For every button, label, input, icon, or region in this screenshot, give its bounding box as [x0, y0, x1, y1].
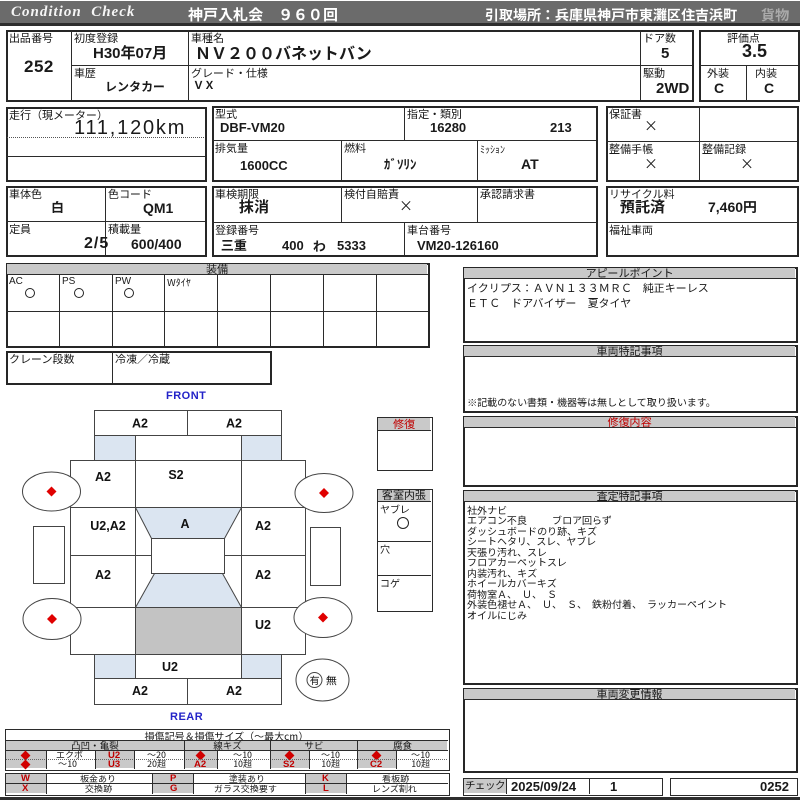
- svg-text:A2: A2: [95, 470, 111, 484]
- svg-text:A2: A2: [226, 684, 242, 698]
- svg-text:U2: U2: [162, 660, 178, 674]
- svg-text:無: 無: [326, 673, 337, 689]
- svg-text:U2: U2: [255, 618, 271, 632]
- svg-text:A2: A2: [132, 417, 148, 431]
- svg-text:A: A: [180, 517, 189, 531]
- svg-text:A2: A2: [95, 568, 111, 582]
- svg-text:A2: A2: [226, 417, 242, 431]
- svg-text:A2: A2: [132, 684, 148, 698]
- svg-text:A2: A2: [255, 519, 271, 533]
- svg-text:U2,A2: U2,A2: [90, 519, 125, 533]
- svg-text:A2: A2: [255, 568, 271, 582]
- svg-text:有: 有: [310, 672, 320, 687]
- svg-text:S2: S2: [168, 468, 183, 482]
